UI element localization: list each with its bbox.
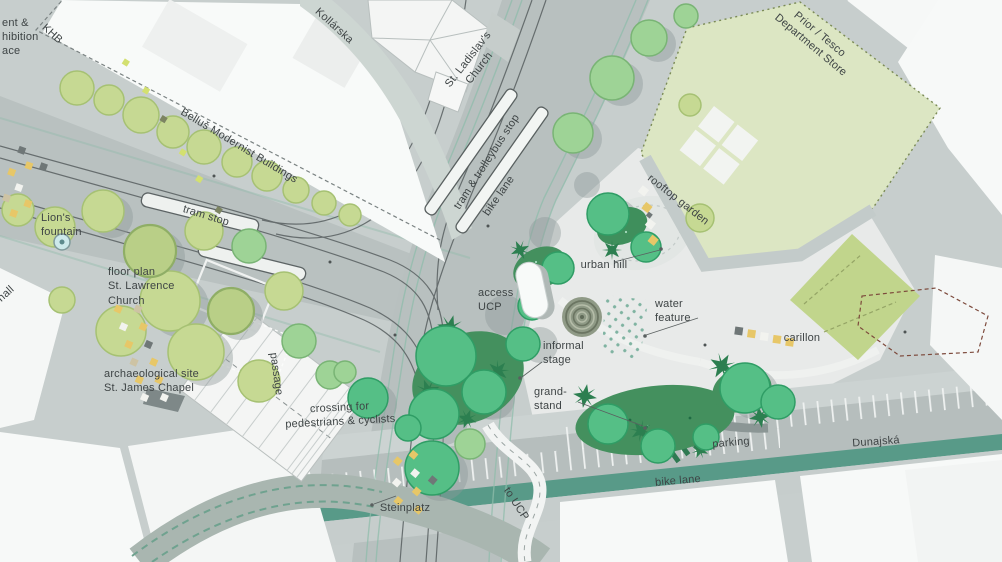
- masterplan-svg: [0, 0, 1002, 562]
- masterplan-canvas: ent & hibition ace hall KHB Belluš Moder…: [0, 0, 1002, 562]
- water-jets-dots: [602, 295, 648, 360]
- lions-fountain-marker: [54, 234, 70, 250]
